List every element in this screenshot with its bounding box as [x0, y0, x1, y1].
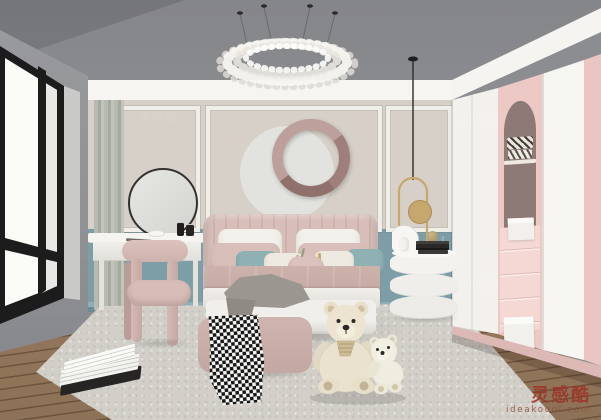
- watermark: 灵感酷 ideakoool.com: [506, 386, 591, 416]
- white-box-on-drawers: [508, 218, 535, 241]
- vanity-dish: [148, 230, 165, 237]
- watermark-domain: ideakoool.com: [506, 406, 591, 416]
- folded-clothes-top: [507, 136, 533, 150]
- stool-shadow: [126, 338, 194, 348]
- perfume-bottle-right: [186, 224, 194, 236]
- cat-figurine-body: [399, 237, 409, 252]
- vanity-leg-left: [99, 260, 104, 310]
- chandelier-ceiling-caps: [237, 4, 338, 15]
- chandelier: [204, 0, 370, 104]
- stool-seat: [127, 280, 191, 306]
- folded-clothes-bottom: [508, 149, 532, 159]
- book-stack: [416, 241, 449, 250]
- niche-shelf: [504, 159, 536, 165]
- bedroom-render: 灵感酷 灵感酷 灵感酷: [0, 0, 601, 420]
- vanity-leg-right: [193, 260, 198, 306]
- chandelier-crystals: [219, 41, 355, 87]
- wall-ring-decor: [272, 119, 350, 197]
- perfume-bottle-left: [177, 222, 184, 236]
- watermark-brand: 灵感酷: [506, 386, 591, 407]
- book-thin: [418, 250, 448, 254]
- arch-niche: [504, 100, 536, 234]
- teddy-bears: [300, 294, 420, 406]
- pendant-gold-disc: [409, 201, 432, 224]
